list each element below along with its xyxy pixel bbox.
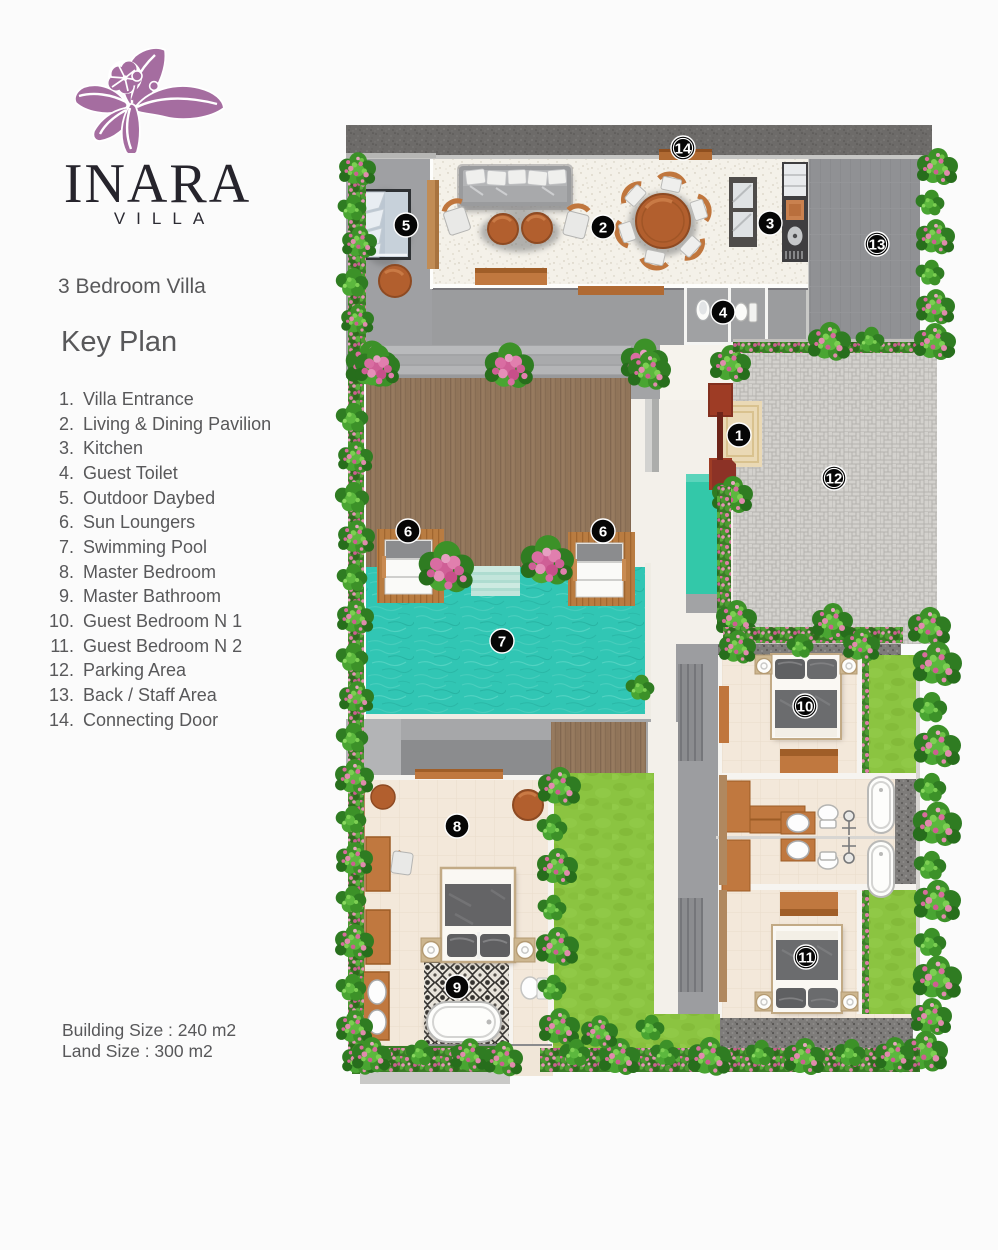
svg-text:9: 9: [453, 980, 461, 997]
svg-text:12: 12: [826, 471, 843, 488]
svg-text:1: 1: [735, 428, 743, 445]
svg-text:3: 3: [766, 216, 774, 233]
svg-text:6: 6: [404, 524, 412, 541]
svg-text:6: 6: [599, 524, 607, 541]
svg-text:7: 7: [498, 634, 506, 651]
svg-text:13: 13: [869, 237, 886, 254]
svg-text:5: 5: [402, 218, 410, 235]
svg-text:11: 11: [798, 950, 814, 967]
svg-text:14: 14: [675, 141, 692, 158]
svg-text:8: 8: [453, 819, 461, 836]
svg-text:2: 2: [599, 220, 607, 237]
svg-text:4: 4: [719, 305, 728, 322]
svg-text:10: 10: [797, 699, 814, 716]
